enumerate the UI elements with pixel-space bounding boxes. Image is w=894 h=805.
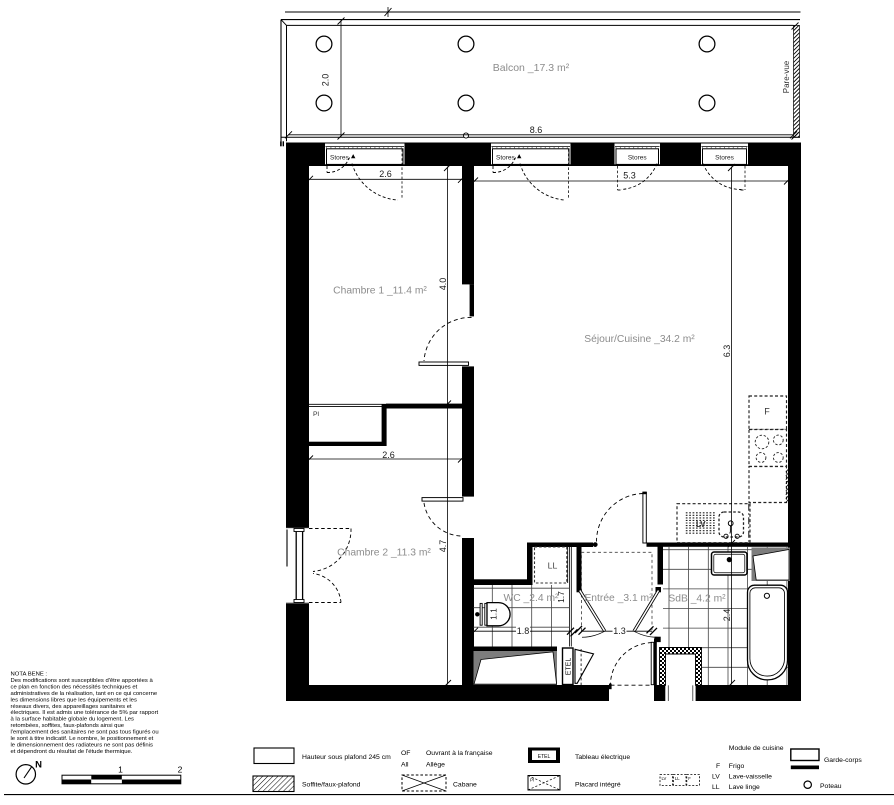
svg-text:administratives de la réalisat: administratives de la réalisation, tant … — [11, 691, 158, 697]
svg-text:Module de cuisine: Module de cuisine — [729, 745, 784, 752]
svg-text:All: All — [401, 762, 409, 769]
svg-text:retombées, soffites, faux-plaf: retombées, soffites, faux-plafonds ainsi… — [11, 723, 125, 729]
svg-text:réseaux divers, des appareilla: réseaux divers, des appareillages sanita… — [11, 704, 133, 710]
svg-text:OF: OF — [401, 750, 410, 757]
svg-text:Pare-vue: Pare-vue — [782, 60, 791, 93]
svg-text:2.6: 2.6 — [382, 450, 395, 460]
svg-text:Garde-corps: Garde-corps — [824, 757, 862, 764]
svg-text:Pl: Pl — [313, 411, 320, 418]
svg-text:LV: LV — [662, 776, 667, 781]
svg-text:Stores: Stores — [715, 155, 735, 162]
svg-text:F: F — [688, 776, 691, 781]
svg-text:SdB _4.2 m²: SdB _4.2 m² — [668, 594, 726, 605]
svg-text:Frigo: Frigo — [729, 763, 745, 770]
svg-text:l'emplacement des sanitaires n: l'emplacement des sanitaires ne sont pas… — [11, 730, 159, 736]
svg-text:1: 1 — [118, 765, 123, 775]
svg-text:LL: LL — [712, 784, 720, 791]
svg-text:2: 2 — [178, 765, 183, 775]
svg-text:Entrée _3.1 m²: Entrée _3.1 m² — [584, 593, 653, 604]
svg-text:Lave-vaisselle: Lave-vaisselle — [729, 774, 772, 781]
svg-text:F: F — [764, 407, 770, 417]
svg-text:N: N — [35, 759, 42, 770]
svg-text:ETEL: ETEL — [538, 754, 551, 760]
svg-text:4.7: 4.7 — [438, 540, 448, 553]
svg-text:Chambre 2 _11.3 m²: Chambre 2 _11.3 m² — [337, 548, 431, 559]
svg-text:Hauteur sous plafond 245 cm: Hauteur sous plafond 245 cm — [302, 754, 391, 761]
svg-text:Cabane: Cabane — [453, 782, 477, 789]
svg-text:1.8: 1.8 — [517, 626, 530, 636]
svg-text:Allège: Allège — [426, 762, 445, 769]
svg-text:1.3: 1.3 — [613, 626, 626, 636]
svg-text:Poteau: Poteau — [820, 783, 842, 790]
svg-text:Séjour/Cuisine _34.2 m²: Séjour/Cuisine _34.2 m² — [584, 334, 695, 345]
svg-text:6.3: 6.3 — [722, 345, 732, 358]
svg-text:et dépendront du résultat de l: et dépendront du résultat de l'étude the… — [11, 749, 133, 755]
svg-text:Ouvrant à la française: Ouvrant à la française — [426, 750, 493, 757]
svg-text:8.6: 8.6 — [530, 125, 543, 135]
svg-text:2.0: 2.0 — [321, 74, 331, 87]
svg-text:Stores: Stores — [628, 155, 648, 162]
svg-text:1.1: 1.1 — [489, 608, 499, 620]
svg-text:Des modifications sont suscept: Des modifications sont susceptibles d'êt… — [11, 678, 154, 684]
svg-text:les dimensions libres que les: les dimensions libres que les équipement… — [11, 697, 137, 703]
svg-text:ETEL: ETEL — [566, 658, 573, 676]
svg-text:LV: LV — [696, 520, 706, 529]
svg-text:ce plan en fonction des nécess: ce plan en fonction des nécessités techn… — [11, 684, 138, 690]
svg-text:électriques. Il est admis une: électriques. Il est admis une tolérance … — [11, 710, 159, 716]
svg-text:Tableau électrique: Tableau électrique — [575, 754, 630, 761]
svg-text:Stores: Stores — [496, 155, 516, 162]
svg-text:WC _2.4 m²: WC _2.4 m² — [504, 593, 559, 604]
svg-text:NOTA BENE :: NOTA BENE : — [11, 672, 48, 678]
svg-text:Soffite/faux-plafond: Soffite/faux-plafond — [302, 782, 361, 789]
svg-text:2.4: 2.4 — [722, 609, 732, 622]
svg-text:Lave linge: Lave linge — [729, 784, 760, 791]
svg-text:Pl: Pl — [530, 778, 534, 783]
svg-text:LL: LL — [548, 561, 558, 571]
svg-text:le sont à titre indicatif. Le: le sont à titre indicatif. Le nombre, le… — [11, 736, 154, 742]
svg-text:LL: LL — [675, 776, 680, 781]
svg-text:Chambre 1 _11.4 m²: Chambre 1 _11.4 m² — [333, 286, 427, 297]
svg-text:4.0: 4.0 — [438, 278, 448, 291]
svg-text:le dimensionnement des radiate: le dimensionnement des radiateurs ne son… — [11, 743, 153, 749]
svg-text:2.6: 2.6 — [379, 169, 392, 179]
svg-text:LV: LV — [712, 774, 720, 781]
svg-text:Placard intégré: Placard intégré — [575, 782, 621, 789]
svg-text:F: F — [716, 763, 720, 770]
svg-text:à la surface habitable globale: à la surface habitable globale du logeme… — [11, 717, 135, 723]
svg-text:Stores: Stores — [330, 155, 350, 162]
svg-text:5.3: 5.3 — [623, 171, 636, 181]
svg-text:Balcon _17.3 m²: Balcon _17.3 m² — [493, 62, 570, 74]
